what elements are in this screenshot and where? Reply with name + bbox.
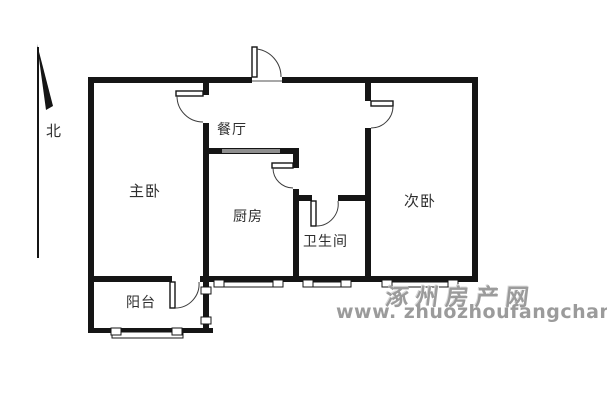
room-label-kitchen: 厨房 [233,209,263,225]
entrance-door [252,47,282,81]
bathroom-door [311,201,338,226]
floor-plan: 北 主卧 餐厅 厨房 卫生间 次卧 阳台 涿州房产网 www. zhuozhou… [0,0,607,419]
north-arrow-icon [37,44,53,258]
balcony-door [170,282,199,308]
kitchen-passthrough-window [222,149,280,153]
interior-walls [203,83,371,282]
second-bedroom-door [371,101,393,128]
room-label-second-bedroom: 次卧 [404,193,436,209]
room-label-master-bedroom: 主卧 [129,183,161,199]
watermark-url: www. zhuozhoufangchan. com [336,301,607,323]
north-label: 北 [46,120,61,141]
floor-plan-drawing [0,0,607,419]
room-label-dining-room: 餐厅 [217,122,247,138]
balcony-east-window [201,282,211,328]
room-label-bathroom: 卫生间 [303,234,348,250]
master-bedroom-door [176,91,203,122]
room-label-balcony: 阳台 [126,295,156,311]
kitchen-door [272,163,293,188]
